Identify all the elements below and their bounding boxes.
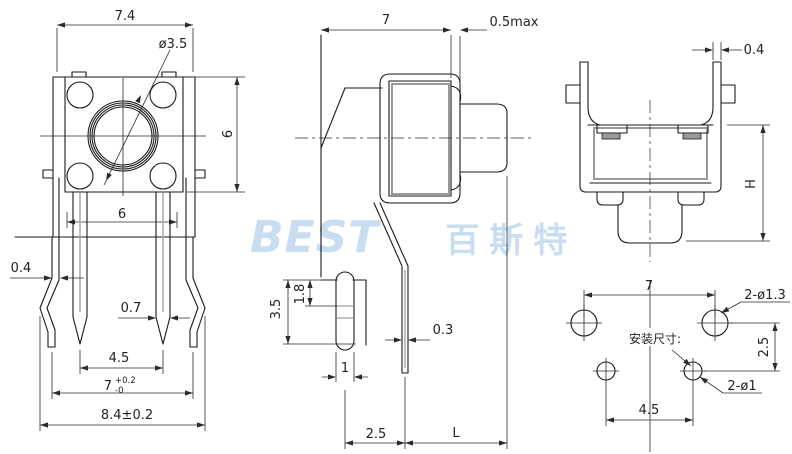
dim-pin-length: L (452, 426, 460, 441)
side-body-gray (392, 84, 449, 194)
pin-detail: 0.4 0.7 4.5 7 +0.2 -0 8.4±0.2 (10, 178, 205, 431)
side-view: 7 0.5max 3.5 1.8 0.3 1 2.5 L (269, 13, 539, 449)
dim-arm-thickness: 0.4 (744, 43, 765, 58)
mounting-crosshairs (566, 280, 733, 452)
corner-contact-circle (150, 163, 176, 189)
front-arrows (705, 47, 766, 241)
front-contact-tab (602, 133, 620, 139)
top-view: 7.4 ø3.5 6 6 (15, 9, 245, 237)
dim-leg-pitch: 7 (104, 379, 112, 394)
dim-bottom-span: 4.5 (639, 403, 660, 418)
top-view-dim-lines (57, 25, 245, 228)
dim-board-offset: 1.8 (293, 284, 308, 305)
dim-gap: 0.5max (490, 15, 539, 30)
drawing-canvas: 7.4 ø3.5 6 6 0.4 0.7 4.5 7 +0.2 -0 8.4±0… (0, 0, 792, 454)
pin-outline (40, 178, 205, 347)
dim-hole-span: 7 (645, 279, 653, 294)
top-view-outline (15, 72, 205, 237)
dim-pin-row-span: 6 (118, 207, 126, 222)
dim-foot-depth: 3.5 (269, 299, 284, 320)
dim-button-diameter: ø3.5 (159, 37, 188, 52)
front-dim-lines (686, 42, 770, 241)
side-arrows (285, 27, 507, 445)
front-contact-tab (683, 133, 701, 139)
engineering-drawing-page: BEST百斯特 7.4 ø3.5 6 6 0.4 (0, 0, 792, 454)
dim-pin-thickness: 0.3 (433, 323, 454, 338)
top-view-arrows (57, 22, 240, 224)
dim-leg-pitch-tol-upper: +0.2 (115, 376, 136, 386)
front-view: 0.4 H (566, 42, 770, 262)
corner-contact-circle (67, 82, 93, 108)
dim-body-height: 6 (221, 130, 236, 138)
mounting-layout: 7 2-ø1.3 2.5 2-ø1 安装尺寸: 4.5 (566, 279, 790, 452)
dim-leg-pitch-tol-lower: -0 (115, 386, 123, 396)
mounting-title: 安装尺寸: (629, 331, 681, 346)
dim-peg-width: 1 (341, 361, 349, 376)
dim-peg-to-pin: 2.5 (366, 427, 387, 442)
corner-contact-circle (150, 82, 176, 108)
dim-height: H (744, 179, 759, 189)
dim-pin-pitch: 4.5 (109, 351, 130, 366)
side-outline (321, 35, 507, 373)
side-gray-lines (337, 270, 405, 368)
front-outline (566, 62, 735, 243)
corner-contact-circle (67, 163, 93, 189)
dim-leg-thickness: 0.4 (11, 261, 32, 276)
dim-pin-width: 0.7 (121, 301, 142, 316)
side-dim-lines (283, 30, 507, 449)
dim-overall-span: 8.4±0.2 (101, 408, 153, 423)
dim-top-holes: 2-ø1.3 (744, 288, 786, 303)
dim-row-gap: 2.5 (757, 337, 772, 358)
locating-peg (336, 272, 354, 350)
dim-body-depth: 7 (382, 13, 390, 28)
dim-bottom-holes: 2-ø1 (727, 379, 756, 394)
dim-top-width: 7.4 (115, 9, 136, 24)
